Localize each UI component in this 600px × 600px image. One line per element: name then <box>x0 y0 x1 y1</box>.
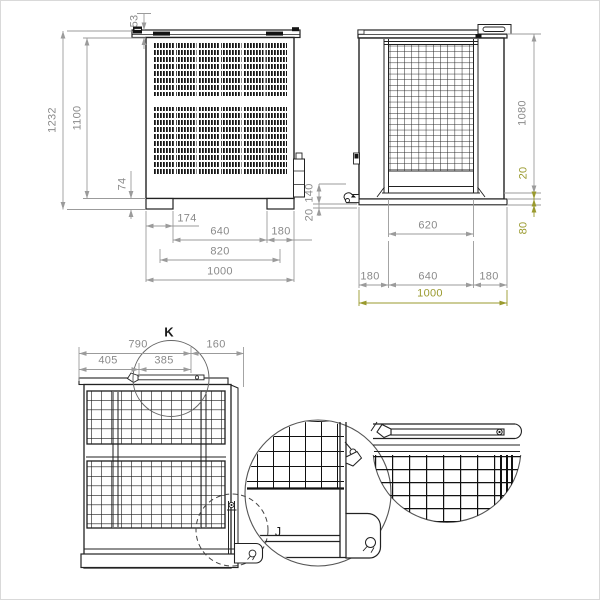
front-height-total-dim: 1232 <box>48 107 59 133</box>
front-lid-offset-dim: 53 <box>130 15 141 28</box>
detail-k-label: K <box>164 326 173 339</box>
front-right-offset-dim: 180 <box>271 227 290 238</box>
technical-drawing-sheet: 1232 1100 53 74 174 640 180 820 1000 140… <box>0 0 600 600</box>
side-width-total-dim: 1000 <box>417 289 443 300</box>
side-center-span-dim: 640 <box>418 272 437 283</box>
side-view-arrowheads-accent <box>359 192 536 306</box>
front-view <box>132 27 305 210</box>
side-sill-gap-dim: 20 <box>519 167 530 180</box>
front-height-body-dim: 1100 <box>73 106 84 131</box>
front-foot-height-dim: 74 <box>118 178 129 191</box>
side-left-offset-dim: 180 <box>360 272 379 283</box>
detail-j-label: J <box>275 526 281 539</box>
front-width-total-dim: 1000 <box>207 267 233 278</box>
side-view <box>344 25 511 205</box>
detail-k-view <box>371 422 523 525</box>
side-door-width-dim: 620 <box>418 221 437 232</box>
detail-j-view <box>245 417 391 566</box>
persp-latch-span-dim: 385 <box>154 356 173 367</box>
side-hook-offset-dim: 20 <box>305 209 316 222</box>
side-base-height-dim: 80 <box>519 222 530 235</box>
perspective-view <box>79 341 268 569</box>
front-left-foot-offset-dim: 174 <box>177 214 196 225</box>
side-hook-height-dim: 140 <box>305 183 316 202</box>
front-between-feet-dim: 640 <box>210 227 229 238</box>
side-right-offset-dim: 180 <box>479 272 498 283</box>
persp-latch-left-offset-dim: 405 <box>98 356 117 367</box>
drawing-linework <box>1 1 599 599</box>
side-view-dimension-lines-accent <box>359 193 534 306</box>
persp-rail-span-dim: 790 <box>128 340 147 351</box>
persp-rail-right-offset-dim: 160 <box>206 340 225 351</box>
side-height-body-dim: 1080 <box>518 100 529 126</box>
front-feet-span-dim: 820 <box>210 247 229 258</box>
